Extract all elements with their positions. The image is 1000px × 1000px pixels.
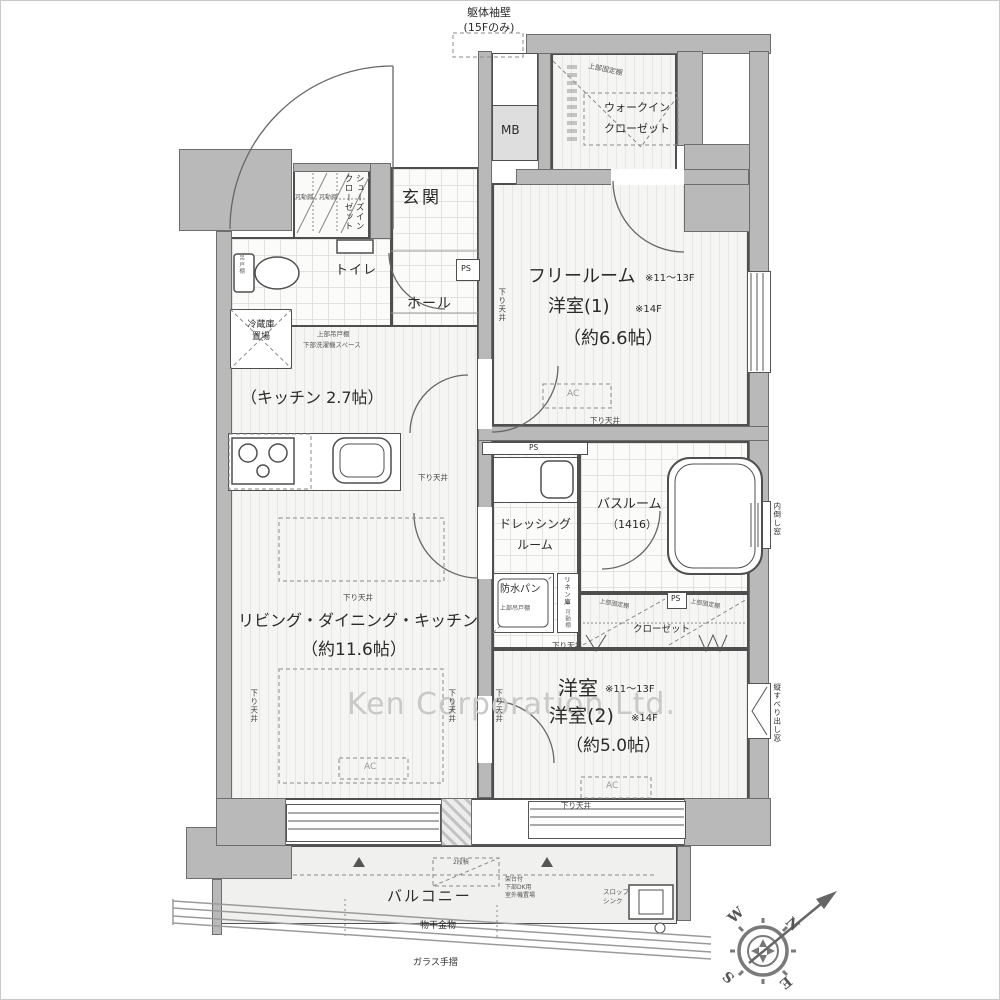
note-glass-rail: ガラス手摺 bbox=[413, 957, 458, 969]
compass-e: E bbox=[776, 973, 794, 992]
wall-free-bottom bbox=[478, 426, 769, 441]
compass-inner-ring bbox=[748, 936, 778, 966]
wall-wic-right bbox=[677, 51, 703, 146]
window-yoshitsu2-balcony bbox=[528, 801, 686, 839]
compass-n: N bbox=[782, 914, 803, 934]
linen-box bbox=[557, 573, 579, 633]
mb-box bbox=[492, 105, 538, 161]
wall-top-band bbox=[526, 34, 771, 54]
fridge-space-box bbox=[230, 309, 292, 369]
room-closet-floor bbox=[579, 593, 749, 649]
wall-balcony-column bbox=[212, 879, 222, 935]
door-gap-free-room bbox=[478, 359, 492, 429]
bousui-pan-box bbox=[493, 573, 554, 633]
compass-outer-ring bbox=[739, 927, 787, 975]
wall-top-left-mass bbox=[179, 149, 292, 231]
window-ldk-balcony bbox=[286, 804, 441, 842]
room-yoshitsu2-floor bbox=[492, 649, 749, 801]
note-kutai-sodekabe: 躯体袖壁 (15Fのみ) bbox=[449, 6, 529, 36]
window-bath-uchitaoshi bbox=[747, 501, 771, 549]
wall-sic-genkan bbox=[370, 163, 391, 239]
wall-bottom-pillar-right bbox=[684, 798, 771, 846]
compass: W N S E bbox=[720, 891, 837, 992]
slop-sink-drain bbox=[655, 923, 665, 933]
compass-arrowhead bbox=[816, 891, 837, 909]
compass-w: W bbox=[724, 904, 747, 927]
room-bath-floor bbox=[579, 441, 749, 593]
room-shoes-closet-floor bbox=[293, 167, 370, 239]
note-uchitaoshi-window: 内倒し窓 bbox=[772, 502, 782, 536]
door-gap-yoshitsu2 bbox=[478, 696, 492, 763]
mb-upper-box bbox=[492, 53, 538, 107]
room-walkin-closet-floor bbox=[551, 53, 677, 173]
compass-needle bbox=[749, 899, 827, 963]
wall-bottom-pillar-center bbox=[441, 798, 472, 846]
compass-points bbox=[751, 939, 775, 963]
kitchen-counter bbox=[228, 433, 401, 491]
ps-box-hall bbox=[456, 259, 480, 281]
compass-knobs bbox=[730, 918, 796, 984]
ps-box-closet bbox=[667, 592, 687, 609]
door-gap-dressing bbox=[478, 507, 492, 579]
window-free-room bbox=[747, 271, 771, 373]
door-gap-wic bbox=[611, 169, 684, 185]
vanity-counter bbox=[493, 457, 578, 503]
floorplan: W N S E Ken Corporation Ltd.躯体袖壁 (15Fのみ)… bbox=[0, 0, 1000, 1000]
compass-s: S bbox=[720, 967, 738, 986]
window-yoshitsu2-tatesuberi bbox=[747, 683, 771, 739]
room-kitchen-ldk-floor bbox=[230, 325, 479, 803]
note-tatesuberi-window: 縦すべり出し窓 bbox=[772, 683, 782, 743]
ps-strip-dressing bbox=[482, 442, 588, 455]
wall-bottom-pillar-left bbox=[216, 798, 286, 846]
wall-wic-left bbox=[538, 53, 551, 171]
wall-balcony-stub bbox=[677, 846, 691, 921]
